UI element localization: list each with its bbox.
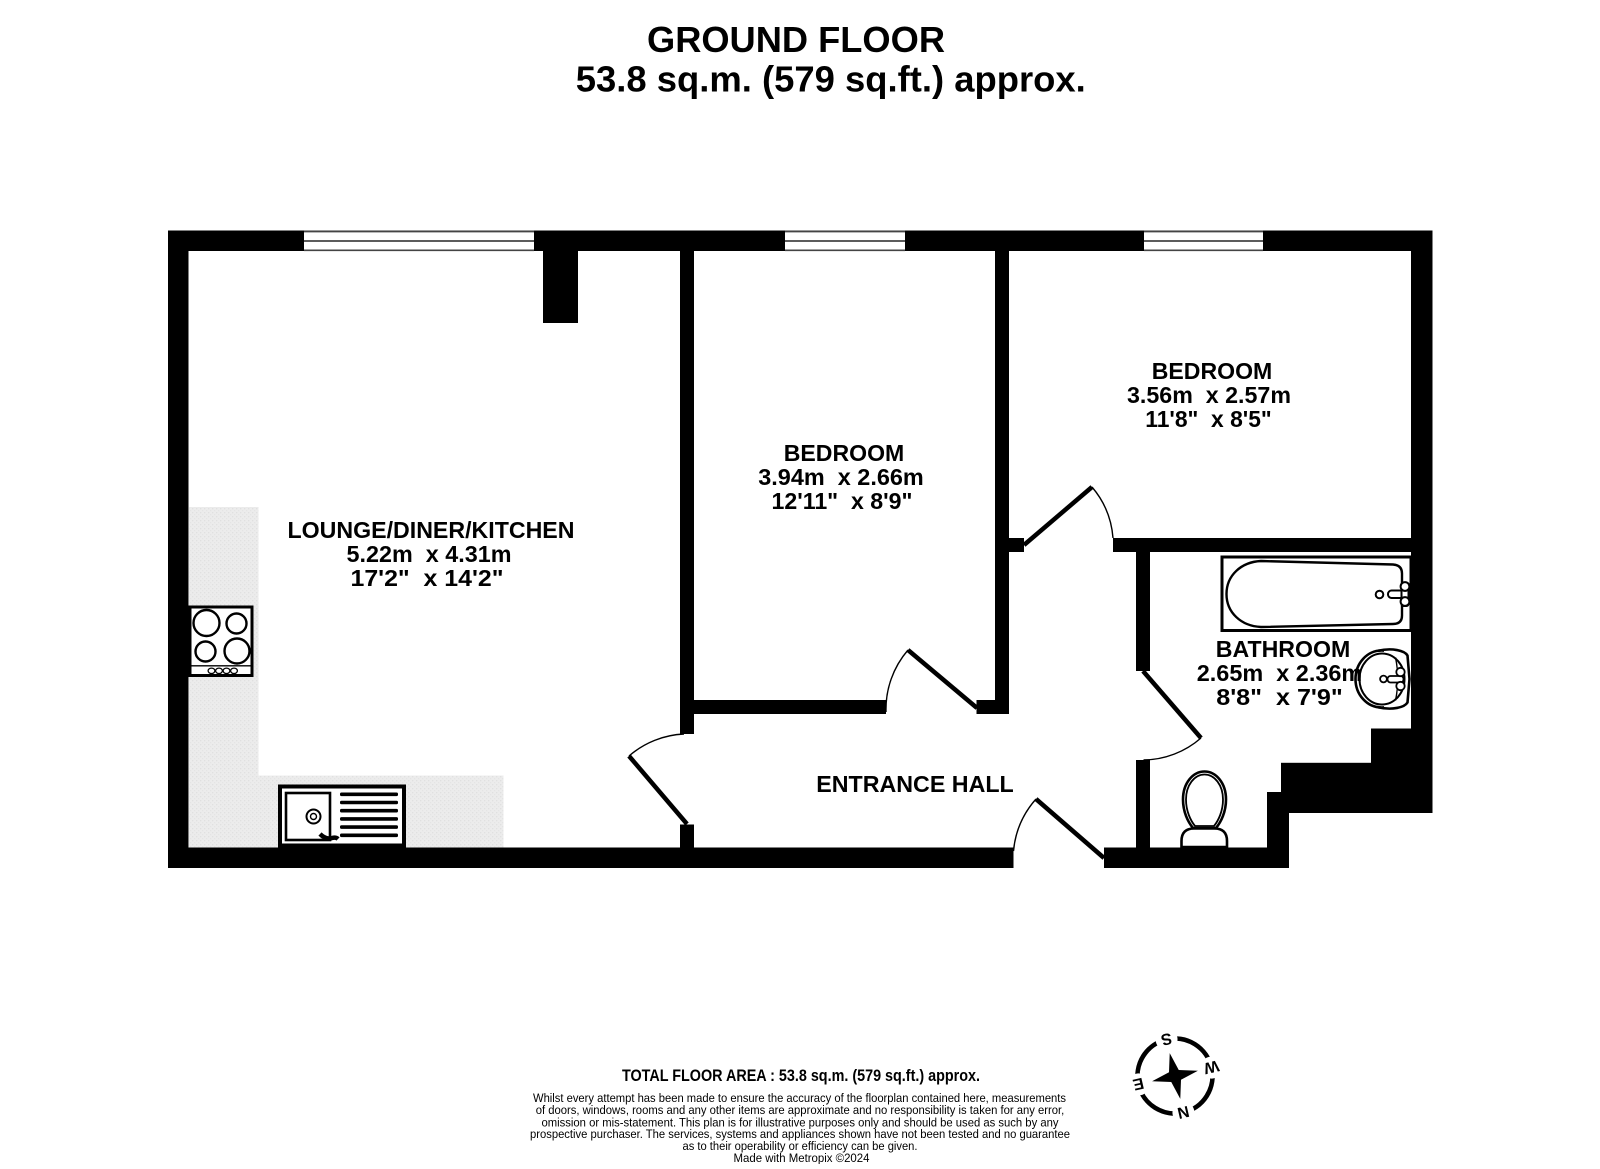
svg-text:2.65m x 2.36m: 2.65m x 2.36m xyxy=(1197,660,1363,686)
svg-text:17'2" x 14'2": 17'2" x 14'2" xyxy=(351,565,504,591)
svg-text:BEDROOM: BEDROOM xyxy=(784,440,905,466)
svg-text:GROUND FLOOR: GROUND FLOOR xyxy=(647,19,945,60)
svg-text:3.94m x 2.66m: 3.94m x 2.66m xyxy=(758,464,924,490)
svg-text:3.56m x 2.57m: 3.56m x 2.57m xyxy=(1127,382,1291,408)
svg-text:TOTAL FLOOR AREA : 53.8 sq.m.: TOTAL FLOOR AREA : 53.8 sq.m. (579 sq.ft… xyxy=(622,1066,980,1085)
svg-text:LOUNGE/DINER/KITCHEN: LOUNGE/DINER/KITCHEN xyxy=(288,517,575,543)
svg-text:BEDROOM: BEDROOM xyxy=(1152,358,1273,384)
svg-text:BATHROOM: BATHROOM xyxy=(1216,636,1351,662)
svg-text:ENTRANCE HALL: ENTRANCE HALL xyxy=(816,771,1014,797)
svg-text:5.22m x 4.31m: 5.22m x 4.31m xyxy=(347,541,512,567)
svg-text:53.8 sq.m. (579 sq.ft.) approx: 53.8 sq.m. (579 sq.ft.) approx. xyxy=(576,59,1086,100)
svg-text:12'11" x 8'9": 12'11" x 8'9" xyxy=(772,488,913,514)
svg-text:11'8" x 8'5": 11'8" x 8'5" xyxy=(1145,406,1272,432)
svg-text:8'8" x 7'9": 8'8" x 7'9" xyxy=(1216,684,1343,710)
svg-text:Made with Metropix ©2024: Made with Metropix ©2024 xyxy=(734,1151,870,1164)
